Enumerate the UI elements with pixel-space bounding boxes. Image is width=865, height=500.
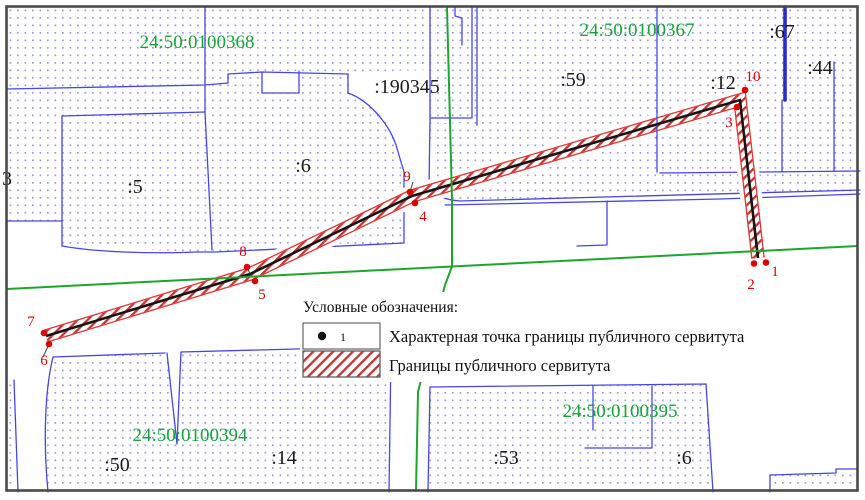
parcel-label-190345: :190345 [374, 76, 440, 98]
quarter-label-0100368: 24:50:0100368 [139, 32, 254, 53]
parcel-label-12: :12 [710, 72, 736, 94]
point-dot-3 [734, 104, 741, 111]
point-label-1: 1 [771, 264, 779, 280]
parcel-label-53: :53 [493, 447, 519, 469]
point-dot-5 [252, 278, 259, 285]
legend-item-boundary-label: Границы публичного сервитута [389, 356, 611, 375]
cadastral-map-page: Условные обозначения: 1 Характерная точк… [0, 0, 865, 500]
point-dot-6 [46, 341, 53, 348]
point-label-9: 9 [403, 169, 411, 185]
point-label-4: 4 [419, 209, 427, 225]
quarter-label-0100395: 24:50:0100395 [562, 401, 677, 422]
white-pocket [262, 71, 299, 93]
point-dot-8 [244, 264, 251, 271]
cadastral-map: Условные обозначения: 1 Характерная точк… [0, 0, 865, 500]
legend-point-marker-icon [318, 332, 326, 340]
parcel-label-5: :5 [127, 176, 143, 198]
legend-hatch-swatch-icon [303, 351, 380, 377]
point-label-3: 3 [725, 115, 733, 131]
point-label-10: 10 [746, 69, 761, 85]
point-label-7: 7 [27, 314, 35, 330]
point-label-5: 5 [258, 287, 266, 303]
legend-item-point-label: Характерная точка границы публичного сер… [389, 327, 745, 346]
parcel-label-6: :6 [295, 155, 311, 177]
parcel-label-59: :59 [560, 69, 586, 91]
parcel-label-44: :44 [807, 57, 833, 79]
point-label-2: 2 [747, 277, 755, 293]
point-dot-1 [763, 259, 770, 266]
point-dot-9 [407, 189, 414, 196]
point-label-8: 8 [239, 244, 247, 260]
parcel-label-6b: :6 [676, 447, 692, 469]
point-dot-4 [412, 200, 419, 207]
parcel-label-67: :67 [769, 21, 795, 43]
parcel-label-14: :14 [271, 447, 297, 469]
quarter-label-0100394: 24:50:0100394 [132, 425, 248, 446]
point-dot-2 [751, 260, 758, 267]
quarter-label-0100367: 24:50:0100367 [579, 20, 694, 41]
point-label-6: 6 [40, 353, 48, 369]
point-dot-10 [742, 87, 749, 94]
legend-title: Условные обозначения: [303, 299, 458, 316]
point-dot-7 [41, 330, 48, 337]
parcel-label-50: :50 [104, 454, 130, 476]
legend-point-number: 1 [340, 330, 346, 344]
legend: Условные обозначения: 1 Характерная точк… [300, 292, 747, 382]
